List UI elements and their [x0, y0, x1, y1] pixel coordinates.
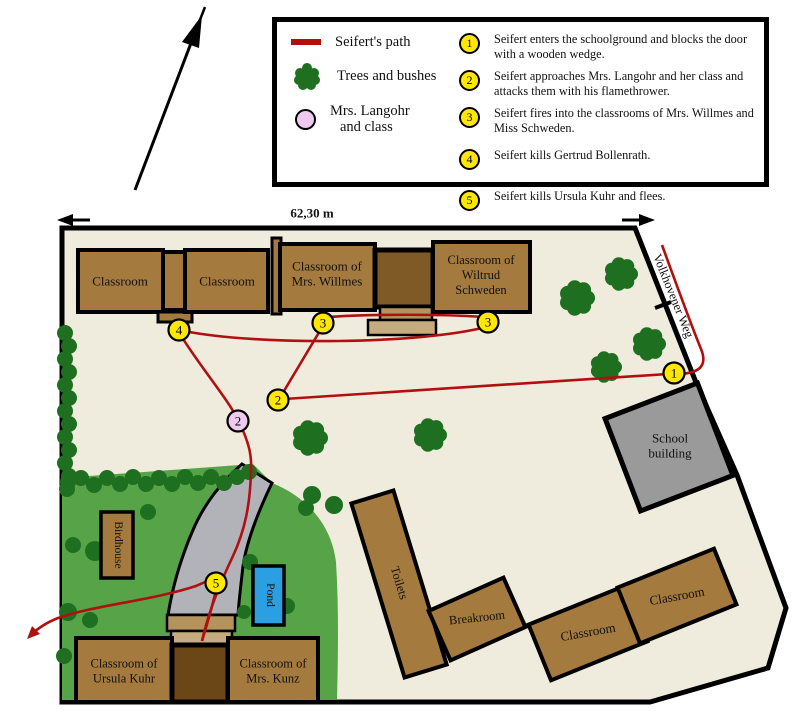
building-dark-center [375, 250, 433, 307]
langohr-icon [295, 109, 316, 130]
svg-text:3: 3 [320, 316, 327, 331]
bush [237, 605, 251, 619]
bush [65, 537, 81, 553]
event-marker-3: 3 [478, 312, 499, 333]
legend-events: 1 Seifert enters the schoolground and bl… [459, 32, 759, 211]
event-4-badge: 4 [459, 149, 480, 170]
event-marker-4: 4 [169, 320, 190, 341]
event-5-badge: 5 [459, 190, 480, 211]
porch-south-upper [167, 615, 235, 631]
bush [82, 612, 98, 628]
event-5-text: Seifert kills Ursula Kuhr and flees. [494, 189, 665, 204]
label-kuhr: Classroom ofUrsula Kuhr [90, 656, 157, 686]
legend-event-2: 2 Seifert approaches Mrs. Langohr and he… [459, 69, 759, 99]
event-marker-3: 3 [313, 313, 334, 334]
scale-label: 62,30 m [290, 205, 333, 220]
event-4-text: Seifert kills Gertrud Bollenrath. [494, 148, 650, 163]
event-marker-1: 1 [664, 363, 685, 384]
legend-path-label: Seifert's path [335, 34, 411, 51]
building-connector [163, 252, 185, 310]
legend-trees-row: Trees and bushes [291, 62, 481, 92]
bush [140, 504, 156, 520]
bush [56, 648, 72, 664]
bush [241, 464, 257, 480]
legend-event-4: 4 Seifert kills Gertrud Bollenrath. [459, 148, 759, 170]
svg-text:2: 2 [275, 393, 282, 408]
label-classroom-nw2: Classroom [199, 273, 255, 288]
legend-langohr-row: Mrs. Langohrand class [291, 103, 481, 136]
event-marker-5: 5 [206, 573, 227, 594]
legend-langohr-label: Mrs. Langohrand class [330, 103, 410, 136]
legend-path-row: Seifert's path [291, 34, 481, 51]
event-2-text: Seifert approaches Mrs. Langohr and her … [494, 69, 759, 99]
tree-icon [291, 62, 323, 92]
svg-text:5: 5 [213, 576, 220, 591]
svg-text:3: 3 [485, 315, 492, 330]
svg-text:2: 2 [235, 414, 242, 429]
porch-lower [368, 320, 436, 335]
svg-text:4: 4 [176, 323, 183, 338]
legend-box: Seifert's path Trees and bushes Mrs. Lan… [272, 17, 769, 187]
event-2-badge: 2 [459, 70, 480, 91]
label-kunz: Classroom ofMrs. Kunz [239, 656, 306, 686]
event-marker-2: 2 [268, 390, 289, 411]
bush [298, 500, 314, 516]
path-swatch [291, 39, 321, 45]
bush [325, 496, 343, 514]
legend-event-3: 3 Seifert fires into the classrooms of M… [459, 106, 759, 136]
event-3-text: Seifert fires into the classrooms of Mrs… [494, 106, 759, 136]
langohr-marker-2: 2 [228, 411, 249, 432]
north-arrow [135, 7, 205, 190]
label-birdhouse: Birdhouse [110, 521, 124, 568]
event-1-badge: 1 [459, 33, 480, 54]
label-school-building: Schoolbuilding [648, 431, 691, 462]
building-door-center [172, 645, 228, 702]
legend-event-5: 5 Seifert kills Ursula Kuhr and flees. [459, 189, 759, 211]
scale-dimension-arrows [57, 214, 655, 226]
legend-event-1: 1 Seifert enters the schoolground and bl… [459, 32, 759, 62]
event-1-text: Seifert enters the schoolground and bloc… [494, 32, 759, 62]
event-3-badge: 3 [459, 107, 480, 128]
label-classroom-nw1: Classroom [92, 273, 148, 288]
schoolground-map-figure: 1233452 62,30 m Volkhovener Weg Classroo… [0, 0, 800, 722]
svg-text:1: 1 [671, 366, 678, 381]
label-schweden: Classroom ofWiltrudSchweden [447, 253, 514, 297]
label-willmes: Classroom ofMrs. Willmes [292, 259, 363, 290]
label-pond: Pond [262, 583, 276, 607]
legend-trees-label: Trees and bushes [337, 68, 436, 85]
legend-symbols: Seifert's path Trees and bushes Mrs. Lan… [291, 34, 481, 136]
